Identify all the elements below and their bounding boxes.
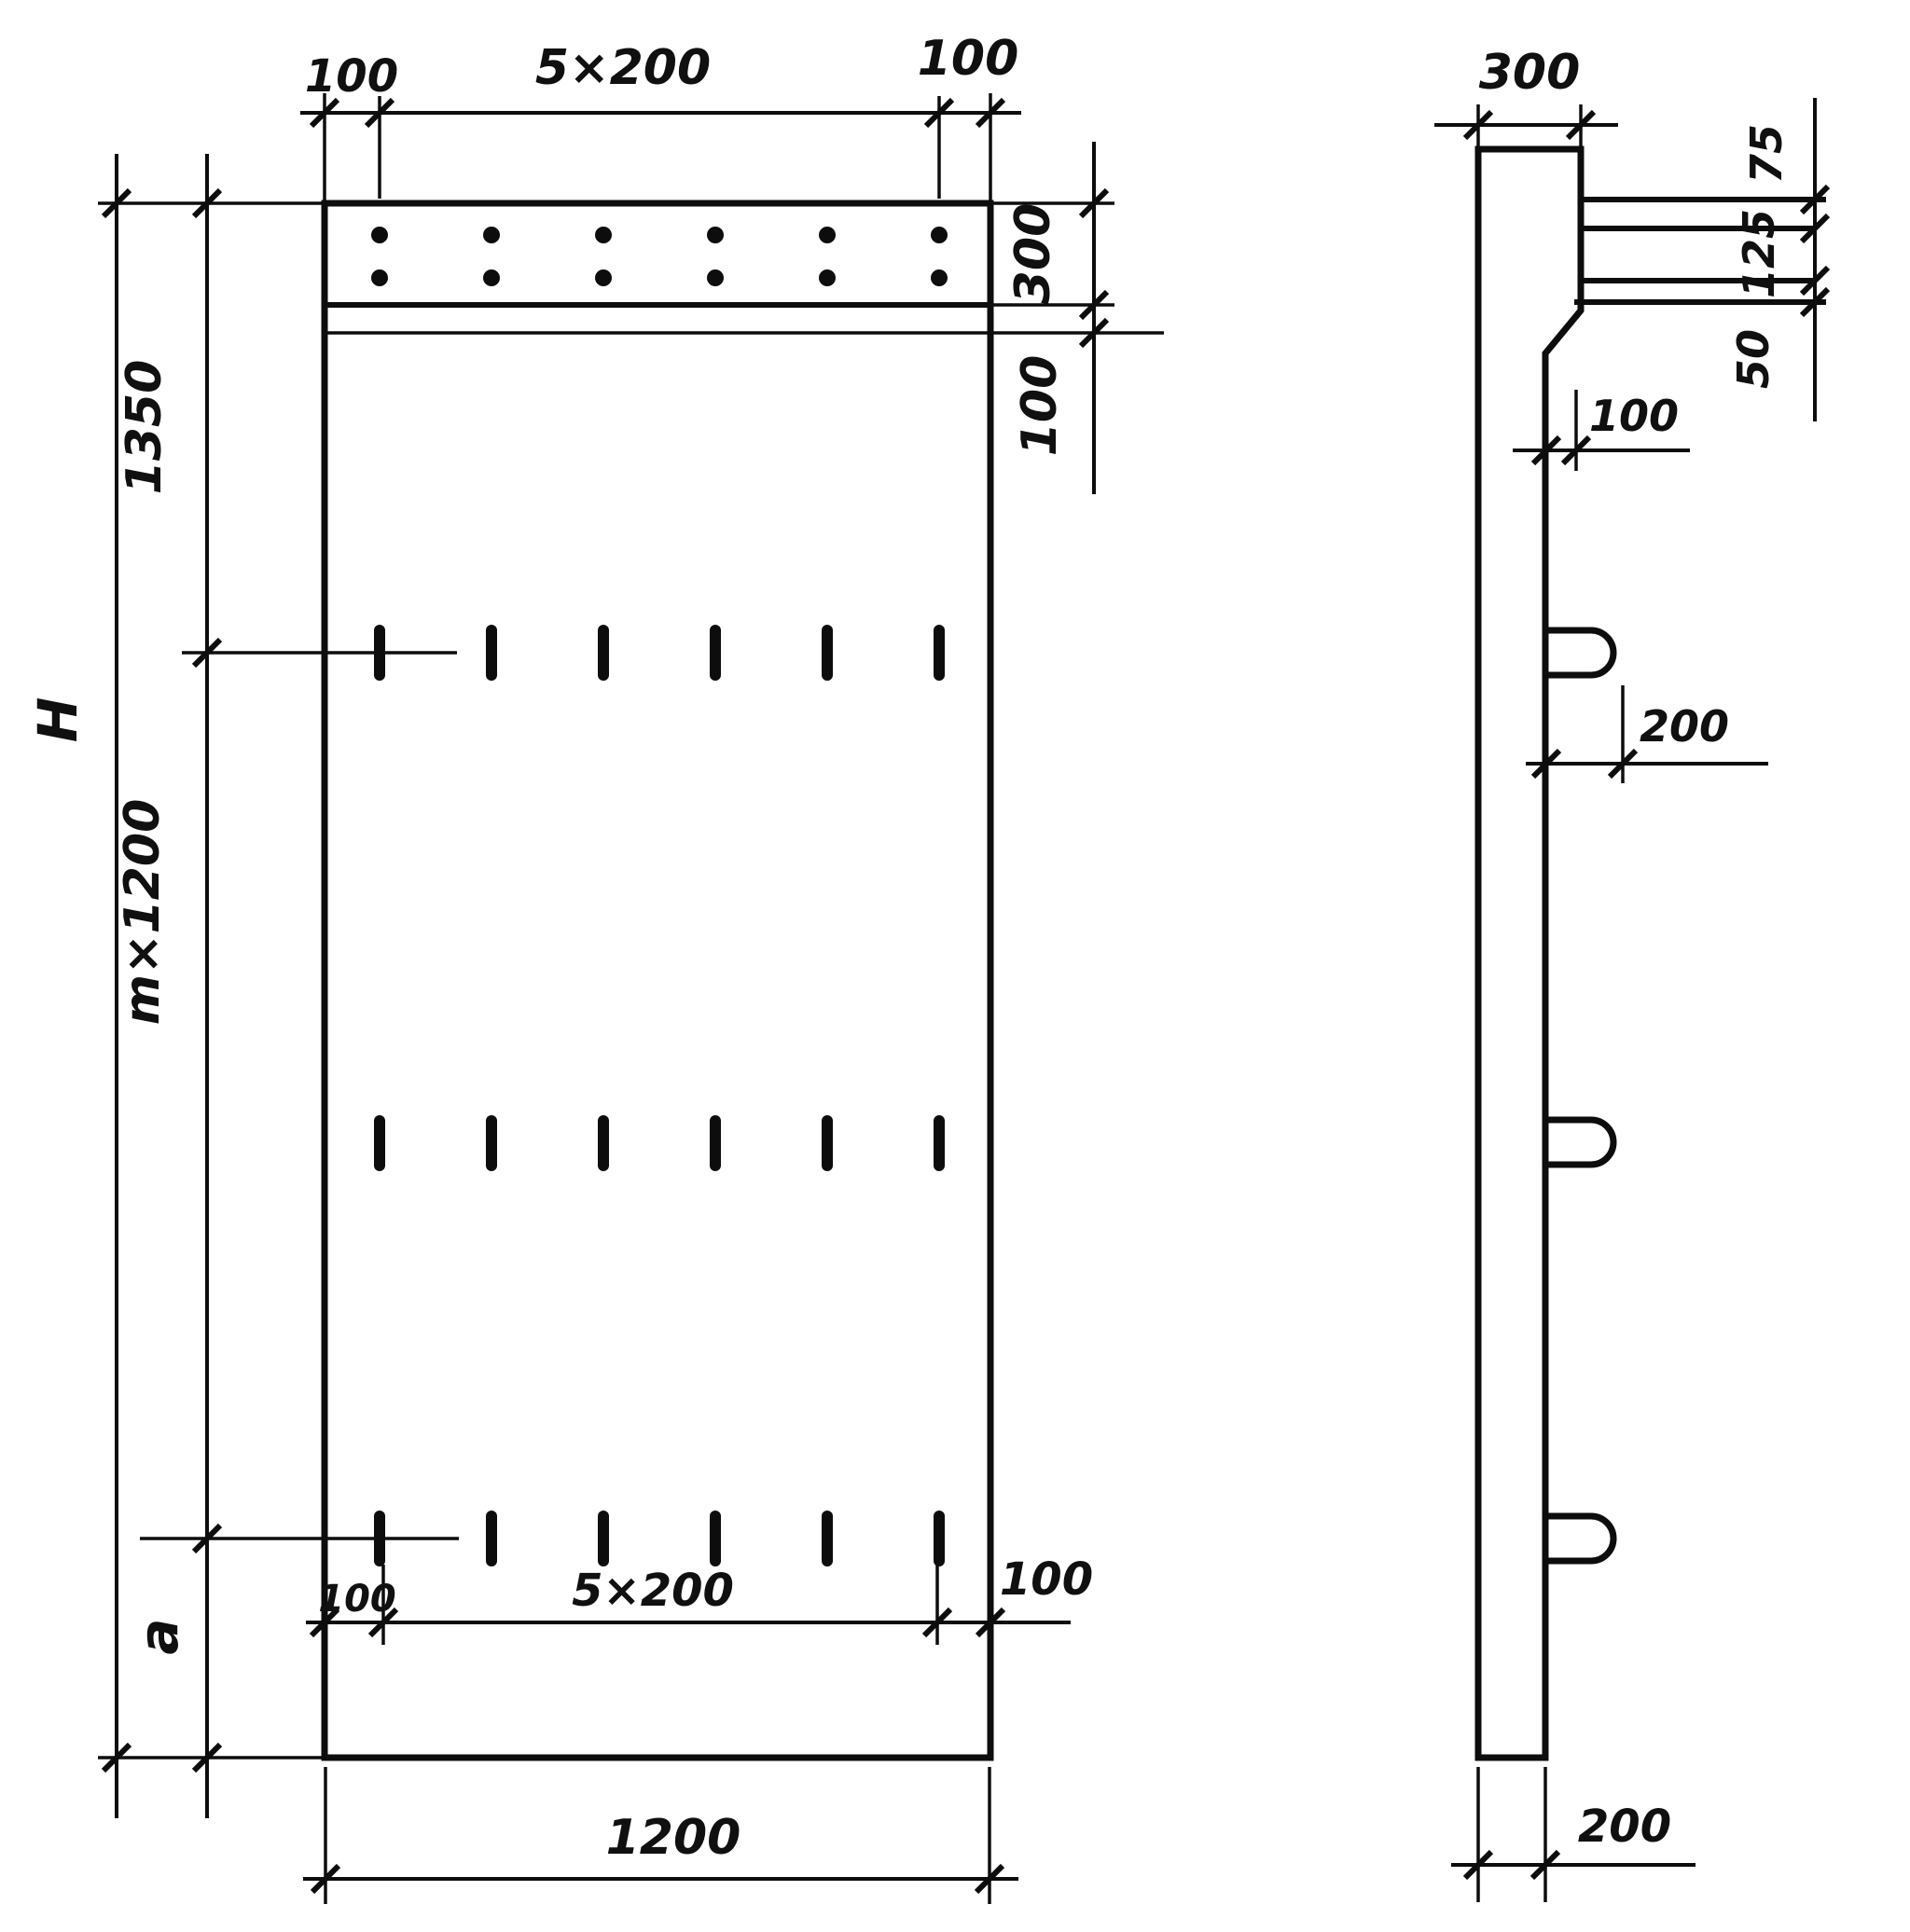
lifting-loop	[1545, 1516, 1613, 1561]
slot-mark	[598, 1511, 609, 1566]
rebar-dot	[931, 227, 948, 243]
side-extension-lines	[1478, 104, 1623, 1902]
front-bottom-spacing-label: 5×200	[572, 1565, 734, 1617]
rebar-dot	[707, 227, 724, 243]
side-bar-middle-label: 125	[1734, 209, 1784, 298]
rebar-dot	[819, 227, 836, 243]
front-top-spacing-label: 5×200	[535, 40, 711, 96]
slot-mark	[822, 625, 833, 681]
rebar-dot	[483, 269, 500, 286]
side-step-offset-label: 100	[1589, 391, 1679, 441]
panel-outline	[325, 203, 990, 1758]
front-view: 100 5×200 100 300 100 1350 m×1200 H a 10…	[26, 31, 1164, 1904]
side-bar-top-label: 75	[1741, 124, 1792, 184]
slot-mark	[710, 1115, 721, 1171]
front-top-right-margin-label: 100	[918, 31, 1019, 87]
rebar-dot	[371, 269, 388, 286]
rebar-dot	[819, 269, 836, 286]
front-left-middle-segment-label: m×1200	[115, 799, 171, 1025]
rebar-dot	[595, 227, 612, 243]
rebar-dot	[483, 227, 500, 243]
rebar-dots	[371, 227, 948, 286]
slot-mark	[598, 625, 609, 681]
side-loop-projection-label: 200	[1640, 701, 1729, 752]
rebar-dot	[931, 269, 948, 286]
slot-mark	[934, 625, 945, 681]
side-bar-bottom-label: 50	[1728, 329, 1779, 389]
slot-marks	[374, 625, 945, 1566]
rebar-dot	[595, 269, 612, 286]
side-bottom-thickness-label: 200	[1578, 1801, 1671, 1853]
protruding-bars	[1574, 200, 1826, 302]
slot-mark	[374, 1115, 385, 1171]
front-band-height-label: 300	[1005, 203, 1061, 305]
front-band-offset-label: 100	[1012, 355, 1068, 457]
slot-mark	[486, 1511, 497, 1566]
front-bottom-left-margin-label: 100	[318, 1578, 396, 1621]
slot-mark	[710, 625, 721, 681]
front-overall-width-label: 1200	[606, 1810, 741, 1866]
slot-mark	[934, 1115, 945, 1171]
front-extension-lines	[98, 93, 1164, 1904]
slot-mark	[934, 1511, 945, 1566]
slot-mark	[822, 1511, 833, 1566]
side-view: 300 75 125 50 100 200 200	[1434, 45, 1828, 1902]
slot-mark	[822, 1115, 833, 1171]
front-left-top-segment-label: 1350	[117, 360, 173, 495]
slot-mark	[598, 1115, 609, 1171]
rebar-dot	[707, 269, 724, 286]
slot-mark	[486, 625, 497, 681]
front-bottom-right-margin-label: 100	[1000, 1553, 1093, 1606]
front-overall-height-label: H	[26, 697, 90, 743]
lifting-loops	[1545, 630, 1613, 1561]
drawing-canvas: 100 5×200 100 300 100 1350 m×1200 H a 10…	[0, 0, 1910, 1932]
side-top-thickness-label: 300	[1479, 45, 1581, 101]
panel-drawing: 100 5×200 100 300 100 1350 m×1200 H a 10…	[0, 0, 1910, 1932]
slot-mark	[710, 1511, 721, 1566]
lifting-loop	[1545, 1120, 1613, 1165]
front-top-left-margin-label: 100	[305, 50, 398, 103]
slot-mark	[486, 1115, 497, 1171]
front-left-bottom-segment-label: a	[127, 1618, 190, 1654]
lifting-loop	[1545, 630, 1613, 675]
rebar-dot	[371, 227, 388, 243]
